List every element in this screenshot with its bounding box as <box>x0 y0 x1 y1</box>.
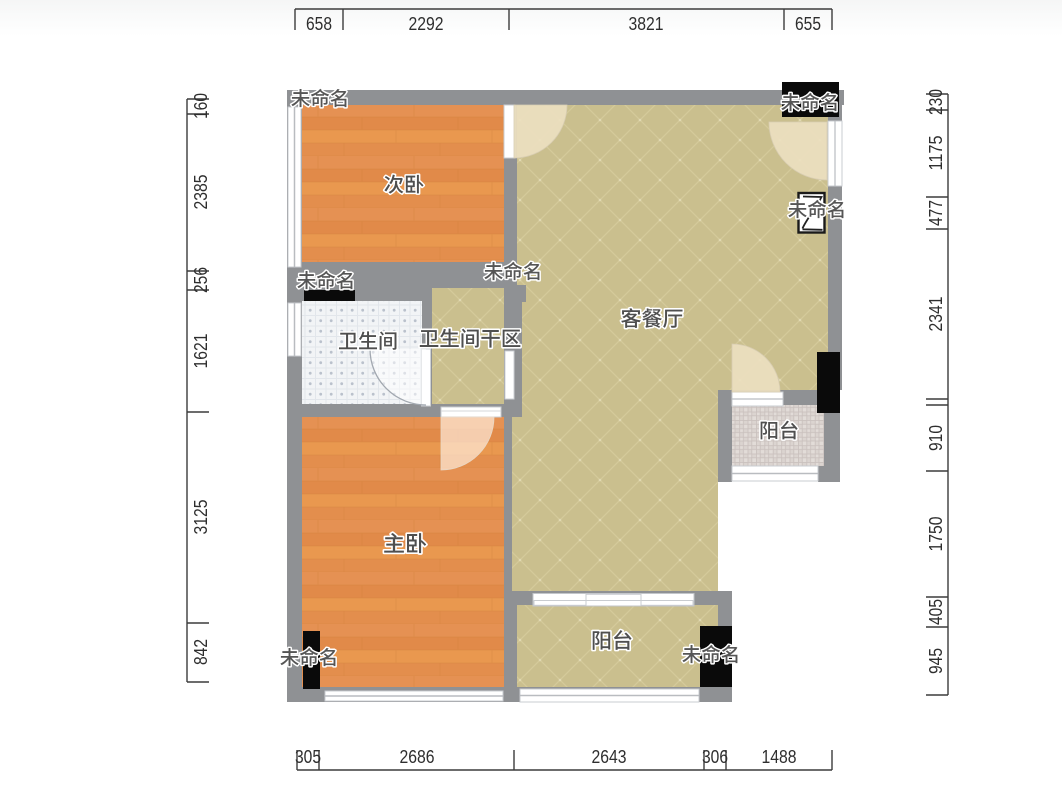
svg-text:2686: 2686 <box>400 747 435 767</box>
svg-text:1488: 1488 <box>762 747 797 767</box>
svg-text:3821: 3821 <box>629 14 664 34</box>
svg-text:1621: 1621 <box>191 334 211 369</box>
svg-text:842: 842 <box>191 639 211 665</box>
svg-text:945: 945 <box>926 648 946 674</box>
svg-text:3125: 3125 <box>191 500 211 535</box>
svg-text:910: 910 <box>926 425 946 451</box>
svg-text:230: 230 <box>926 89 946 115</box>
svg-text:405: 405 <box>926 599 946 625</box>
svg-text:305: 305 <box>295 747 321 767</box>
svg-text:658: 658 <box>306 14 332 34</box>
svg-text:256: 256 <box>191 267 211 293</box>
svg-text:306: 306 <box>702 747 728 767</box>
svg-text:2341: 2341 <box>926 297 946 332</box>
svg-text:2385: 2385 <box>191 175 211 210</box>
svg-text:160: 160 <box>191 93 211 119</box>
svg-text:2643: 2643 <box>592 747 627 767</box>
svg-text:1175: 1175 <box>926 136 946 171</box>
svg-text:2292: 2292 <box>409 14 444 34</box>
svg-text:1750: 1750 <box>926 517 946 552</box>
svg-text:477: 477 <box>926 200 946 226</box>
svg-text:655: 655 <box>795 14 821 34</box>
